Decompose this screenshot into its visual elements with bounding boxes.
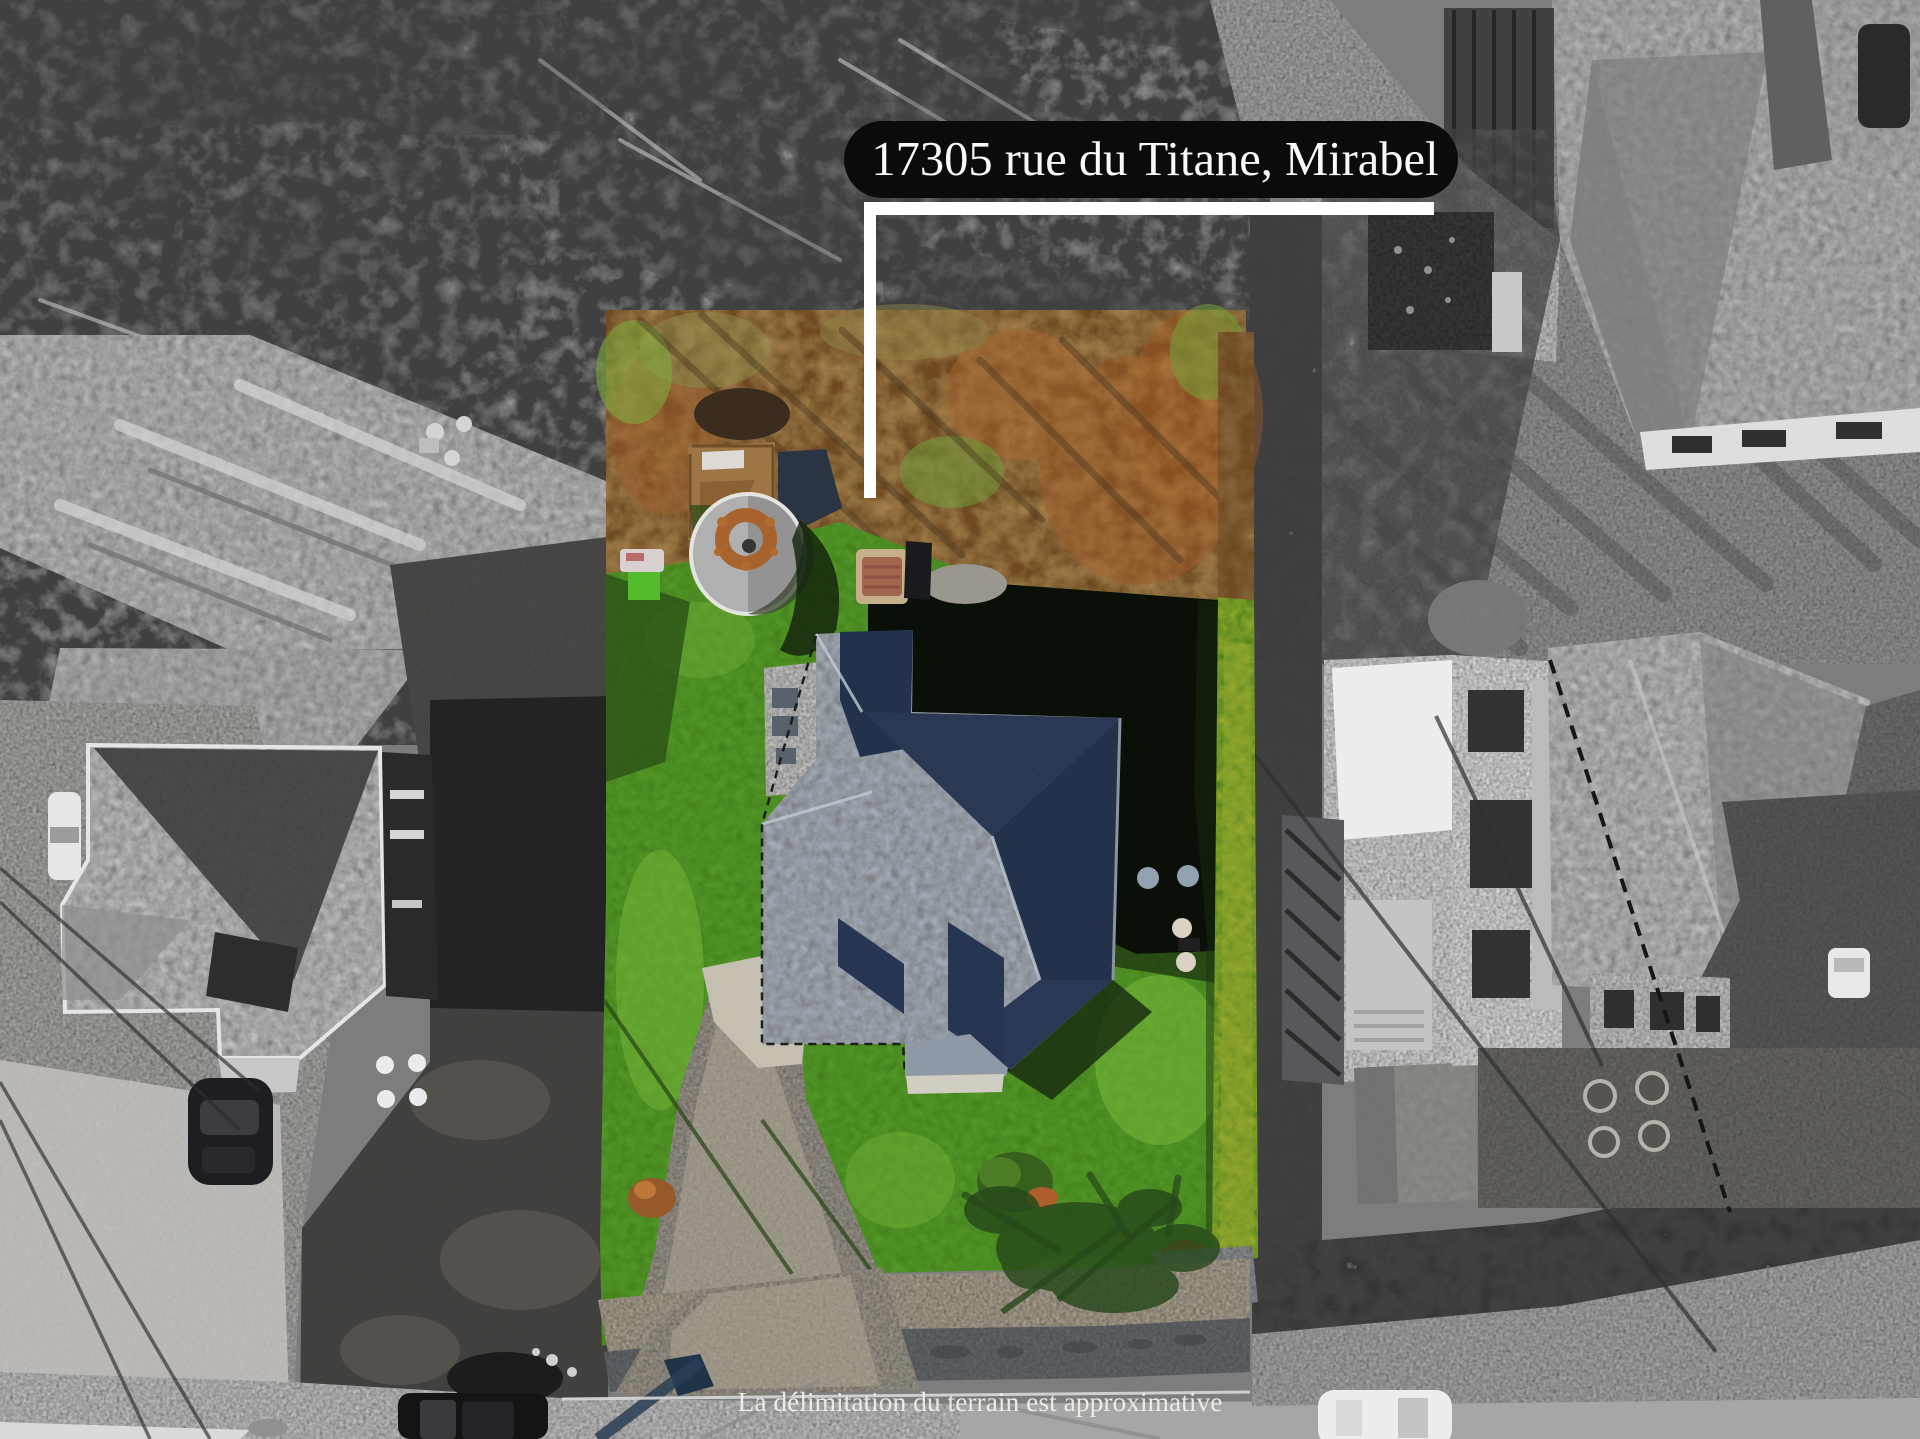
- svg-text:17305 rue du Titane, Mirabel: 17305 rue du Titane, Mirabel: [871, 133, 1438, 186]
- svg-text:La délimitation du terrain est: La délimitation du terrain est approxima…: [738, 1386, 1223, 1417]
